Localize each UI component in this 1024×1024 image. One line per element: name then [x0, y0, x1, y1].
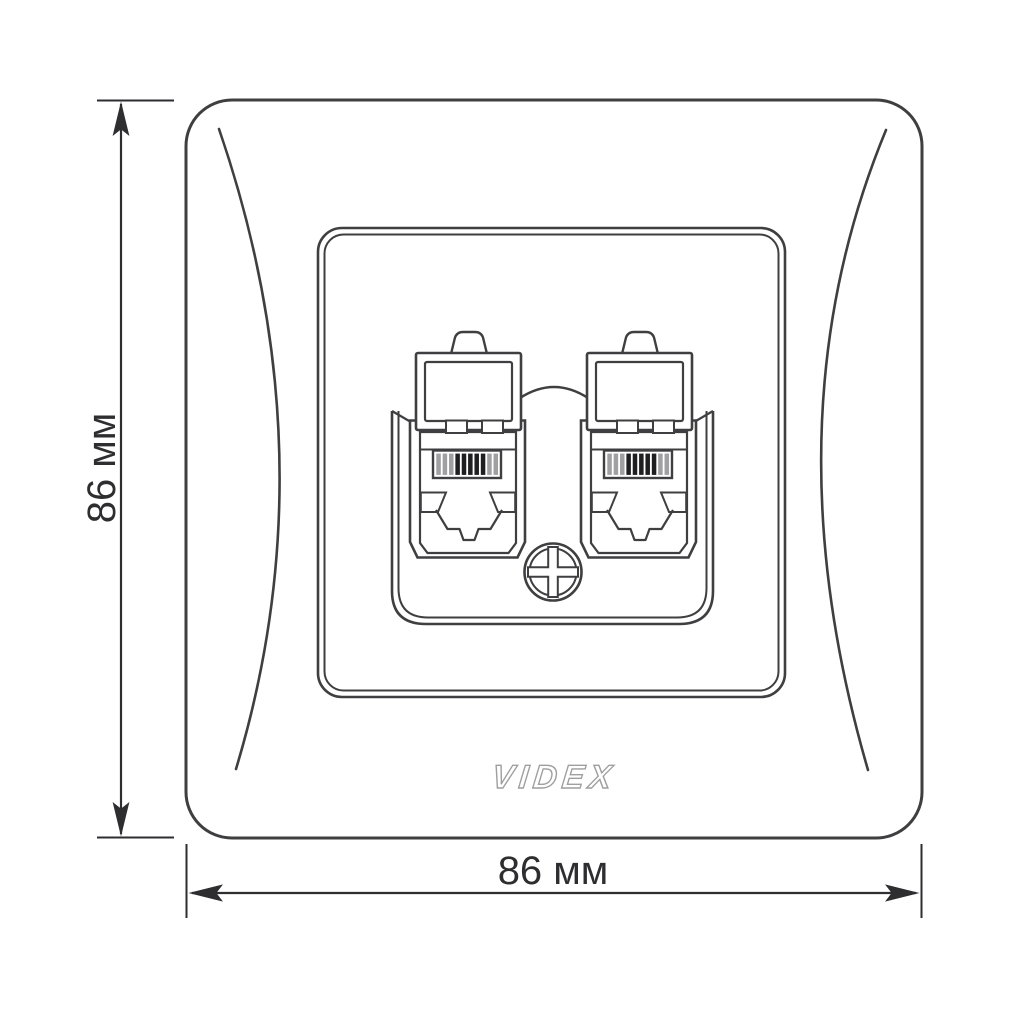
rj-jack-left: [410, 332, 525, 558]
width-dimension: 86 мм: [187, 844, 922, 918]
rj-jack-right: [581, 332, 696, 558]
height-dimension: 86 мм: [80, 101, 174, 838]
width-dimension-label: 86 мм: [498, 849, 609, 893]
product-dimension-diagram: VIDEX 86 мм 86 мм: [0, 0, 1024, 1024]
mounting-screw: [525, 544, 582, 601]
diagram-canvas: VIDEX 86 мм 86 мм: [0, 0, 1024, 1024]
height-dimension-label: 86 мм: [80, 413, 124, 524]
brand-logo: VIDEX: [490, 759, 618, 796]
